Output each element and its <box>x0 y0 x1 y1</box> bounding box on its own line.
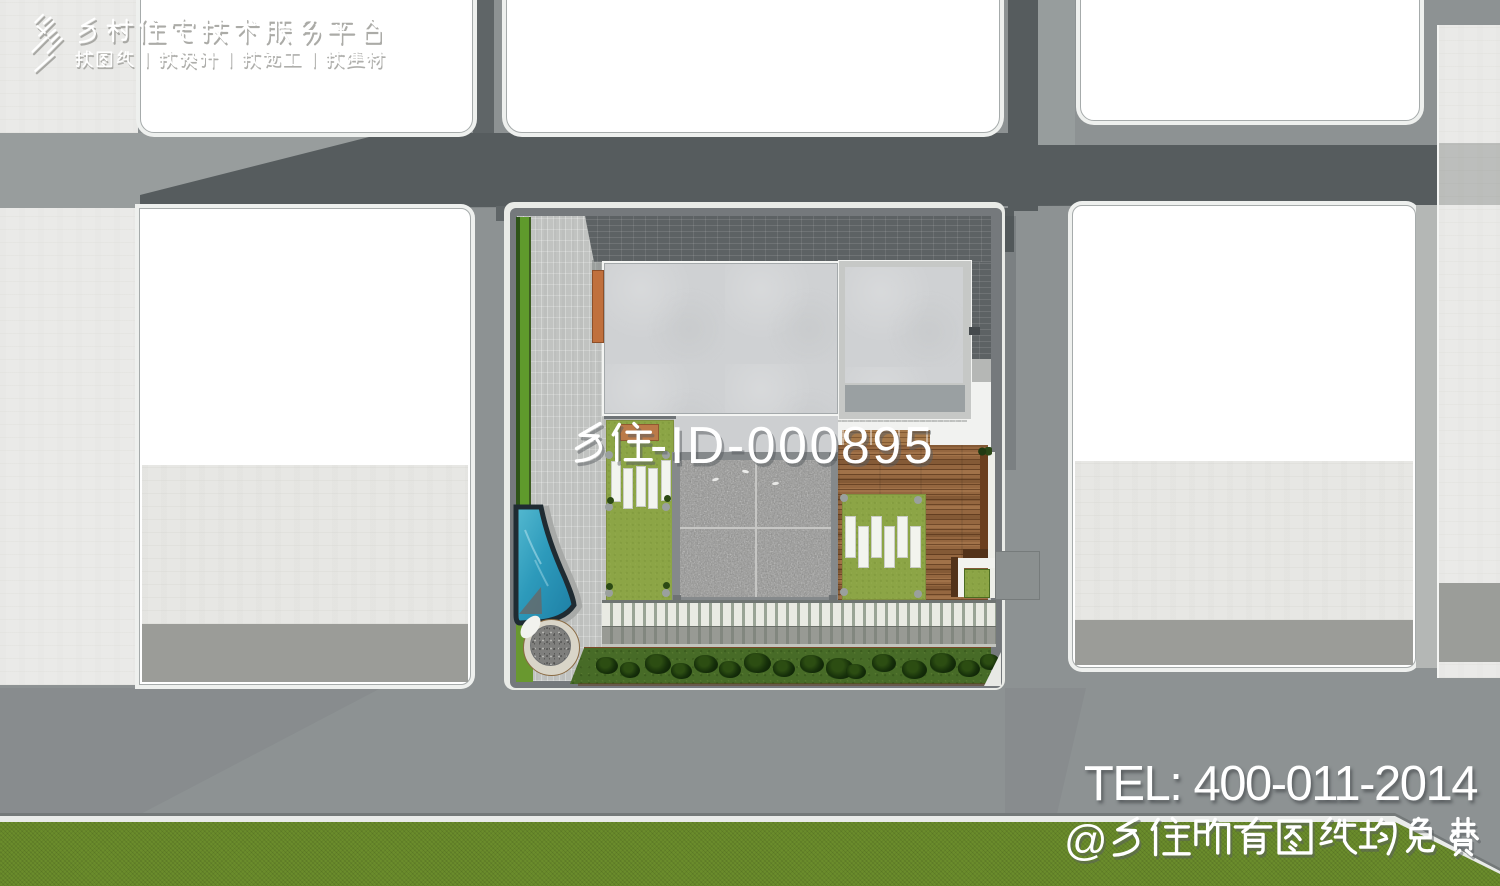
svg-text:@: @ <box>1064 817 1108 865</box>
svg-text:-ID-000895: -ID-000895 <box>650 417 935 475</box>
